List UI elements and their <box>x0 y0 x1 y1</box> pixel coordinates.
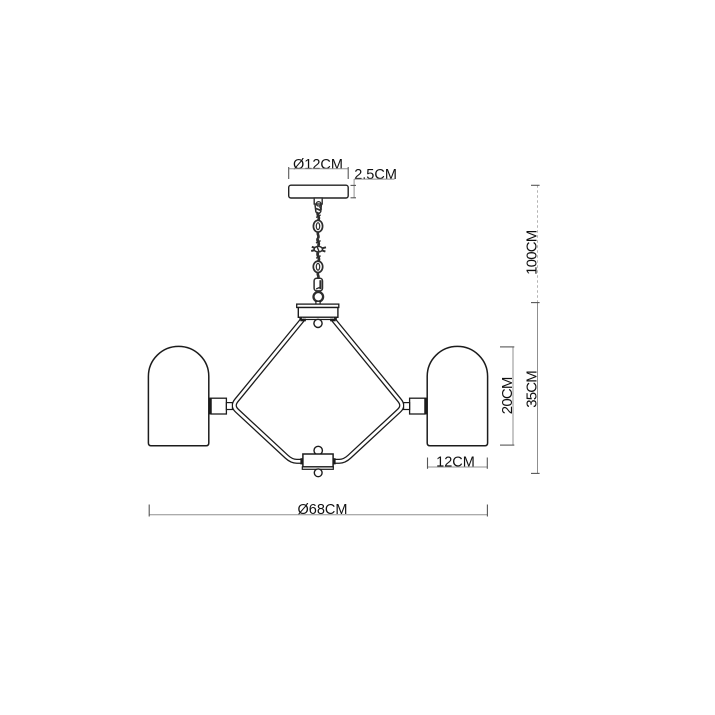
svg-text:Ø12CM: Ø12CM <box>293 157 343 173</box>
svg-text:Ø68CM: Ø68CM <box>298 502 348 518</box>
svg-text:12CM: 12CM <box>436 454 475 470</box>
svg-text:2.5CM: 2.5CM <box>354 167 397 183</box>
svg-text:20CM: 20CM <box>499 377 516 414</box>
svg-text:35CM: 35CM <box>524 371 541 408</box>
svg-text:100CM: 100CM <box>524 230 541 275</box>
